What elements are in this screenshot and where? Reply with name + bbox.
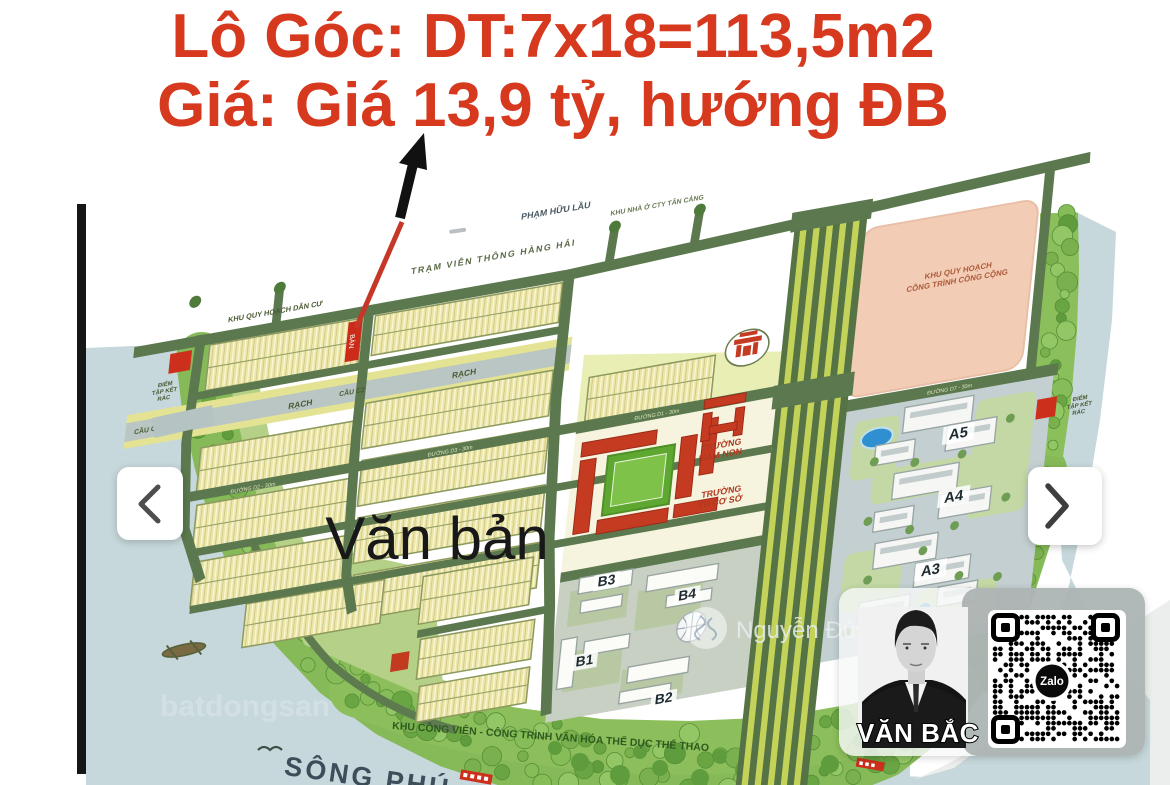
svg-text:Giá: Giá 13,9 tỷ, hướng ĐB: Giá: Giá 13,9 tỷ, hướng ĐB xyxy=(157,71,949,140)
svg-text:batdongsan: batdongsan xyxy=(160,690,330,723)
svg-text:Zalo: Zalo xyxy=(1040,676,1064,688)
svg-text:Lô Góc: DT:7x18=113,5m2: Lô Góc: DT:7x18=113,5m2 xyxy=(171,2,934,71)
svg-text:Văn bản: Văn bản xyxy=(325,505,549,572)
svg-text:VĂN BẮC: VĂN BẮC xyxy=(857,718,979,748)
